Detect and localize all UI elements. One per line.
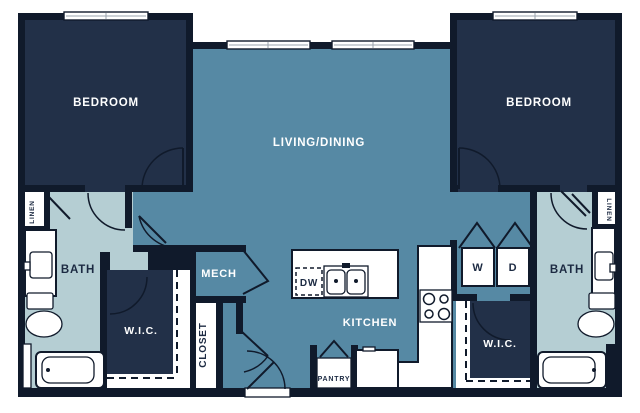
faucet-icon bbox=[342, 263, 350, 268]
linen-right-label: LINEN bbox=[605, 198, 612, 222]
pantry-label: PANTRY bbox=[318, 376, 351, 383]
wall-bath-left-stub bbox=[125, 192, 132, 228]
floor-plan-canvas: BEDROOM BEDROOM LIVING/DINING BATH BATH … bbox=[0, 0, 640, 413]
tub-surround bbox=[23, 344, 31, 388]
wall-closet-left bbox=[190, 245, 196, 388]
floor-plan: BEDROOM BEDROOM LIVING/DINING BATH BATH … bbox=[0, 0, 640, 413]
sink-drain bbox=[334, 279, 338, 283]
bath-left-door-gap bbox=[110, 252, 148, 270]
wall-pantry-left bbox=[310, 345, 317, 388]
wall-bath-wic-band bbox=[100, 252, 110, 270]
wall-bottom bbox=[18, 388, 622, 397]
closet-label: CLOSET bbox=[198, 322, 209, 367]
fridge-handle bbox=[363, 347, 375, 351]
wall-bedroom-left-bottom bbox=[18, 185, 85, 192]
wic-right-label: W.I.C. bbox=[483, 338, 516, 350]
wall-bedroom-right-bottom bbox=[498, 185, 560, 192]
window bbox=[64, 12, 148, 20]
sink-icon bbox=[30, 252, 52, 278]
dryer-label: D bbox=[509, 262, 518, 274]
wall-right bbox=[615, 13, 622, 397]
bedroom-left-label: BEDROOM bbox=[73, 97, 139, 109]
toilet-tank-icon bbox=[589, 293, 615, 309]
living-dining-label: LIVING/DINING bbox=[273, 137, 365, 149]
wall-bedroom-left-right bbox=[186, 13, 193, 192]
wall-hall-mech-top bbox=[133, 245, 246, 252]
wall-wd-bottom bbox=[510, 294, 537, 301]
wall-bedroom-right-bottom bbox=[450, 185, 458, 192]
wall-bath-wic-band bbox=[148, 252, 190, 270]
wall-bath-right-left bbox=[530, 192, 537, 388]
bath-left-label: BATH bbox=[61, 264, 95, 276]
wall-left bbox=[18, 13, 25, 397]
washer-label: W bbox=[472, 262, 483, 274]
wall-closet-right bbox=[216, 303, 223, 388]
kitchen-label: KITCHEN bbox=[343, 317, 398, 329]
wall-wd-bottom bbox=[450, 294, 477, 301]
toilet-tank-icon bbox=[27, 293, 53, 309]
wall-bedroom-right-left bbox=[450, 13, 457, 192]
toilet-icon bbox=[26, 311, 62, 337]
window bbox=[493, 12, 577, 20]
tub-drain-icon bbox=[592, 368, 596, 372]
wic-left-dark bbox=[107, 270, 173, 374]
faucet-icon bbox=[24, 262, 30, 270]
bath-right-label: BATH bbox=[550, 264, 584, 276]
wic-left-label: W.I.C. bbox=[124, 325, 157, 337]
bathtub-inner bbox=[543, 357, 595, 383]
tub-drain-icon bbox=[46, 368, 50, 372]
wall-bedroom-right-bottom bbox=[587, 185, 622, 192]
faucet-icon bbox=[610, 264, 616, 272]
wall-hall-stub bbox=[236, 296, 243, 334]
wall-tub-right-stub bbox=[606, 344, 615, 388]
toilet-icon bbox=[578, 311, 614, 337]
dishwasher-label: DW bbox=[300, 278, 318, 289]
sink-drain bbox=[354, 279, 358, 283]
pantry-floor bbox=[317, 358, 351, 388]
linen-left-label: LINEN bbox=[29, 200, 36, 224]
bedroom-right-label: BEDROOM bbox=[506, 97, 572, 109]
fridge-icon bbox=[356, 350, 398, 388]
mech-label: MECH bbox=[201, 268, 237, 280]
window bbox=[332, 41, 414, 49]
entry-threshold bbox=[245, 388, 290, 397]
window bbox=[227, 41, 310, 49]
